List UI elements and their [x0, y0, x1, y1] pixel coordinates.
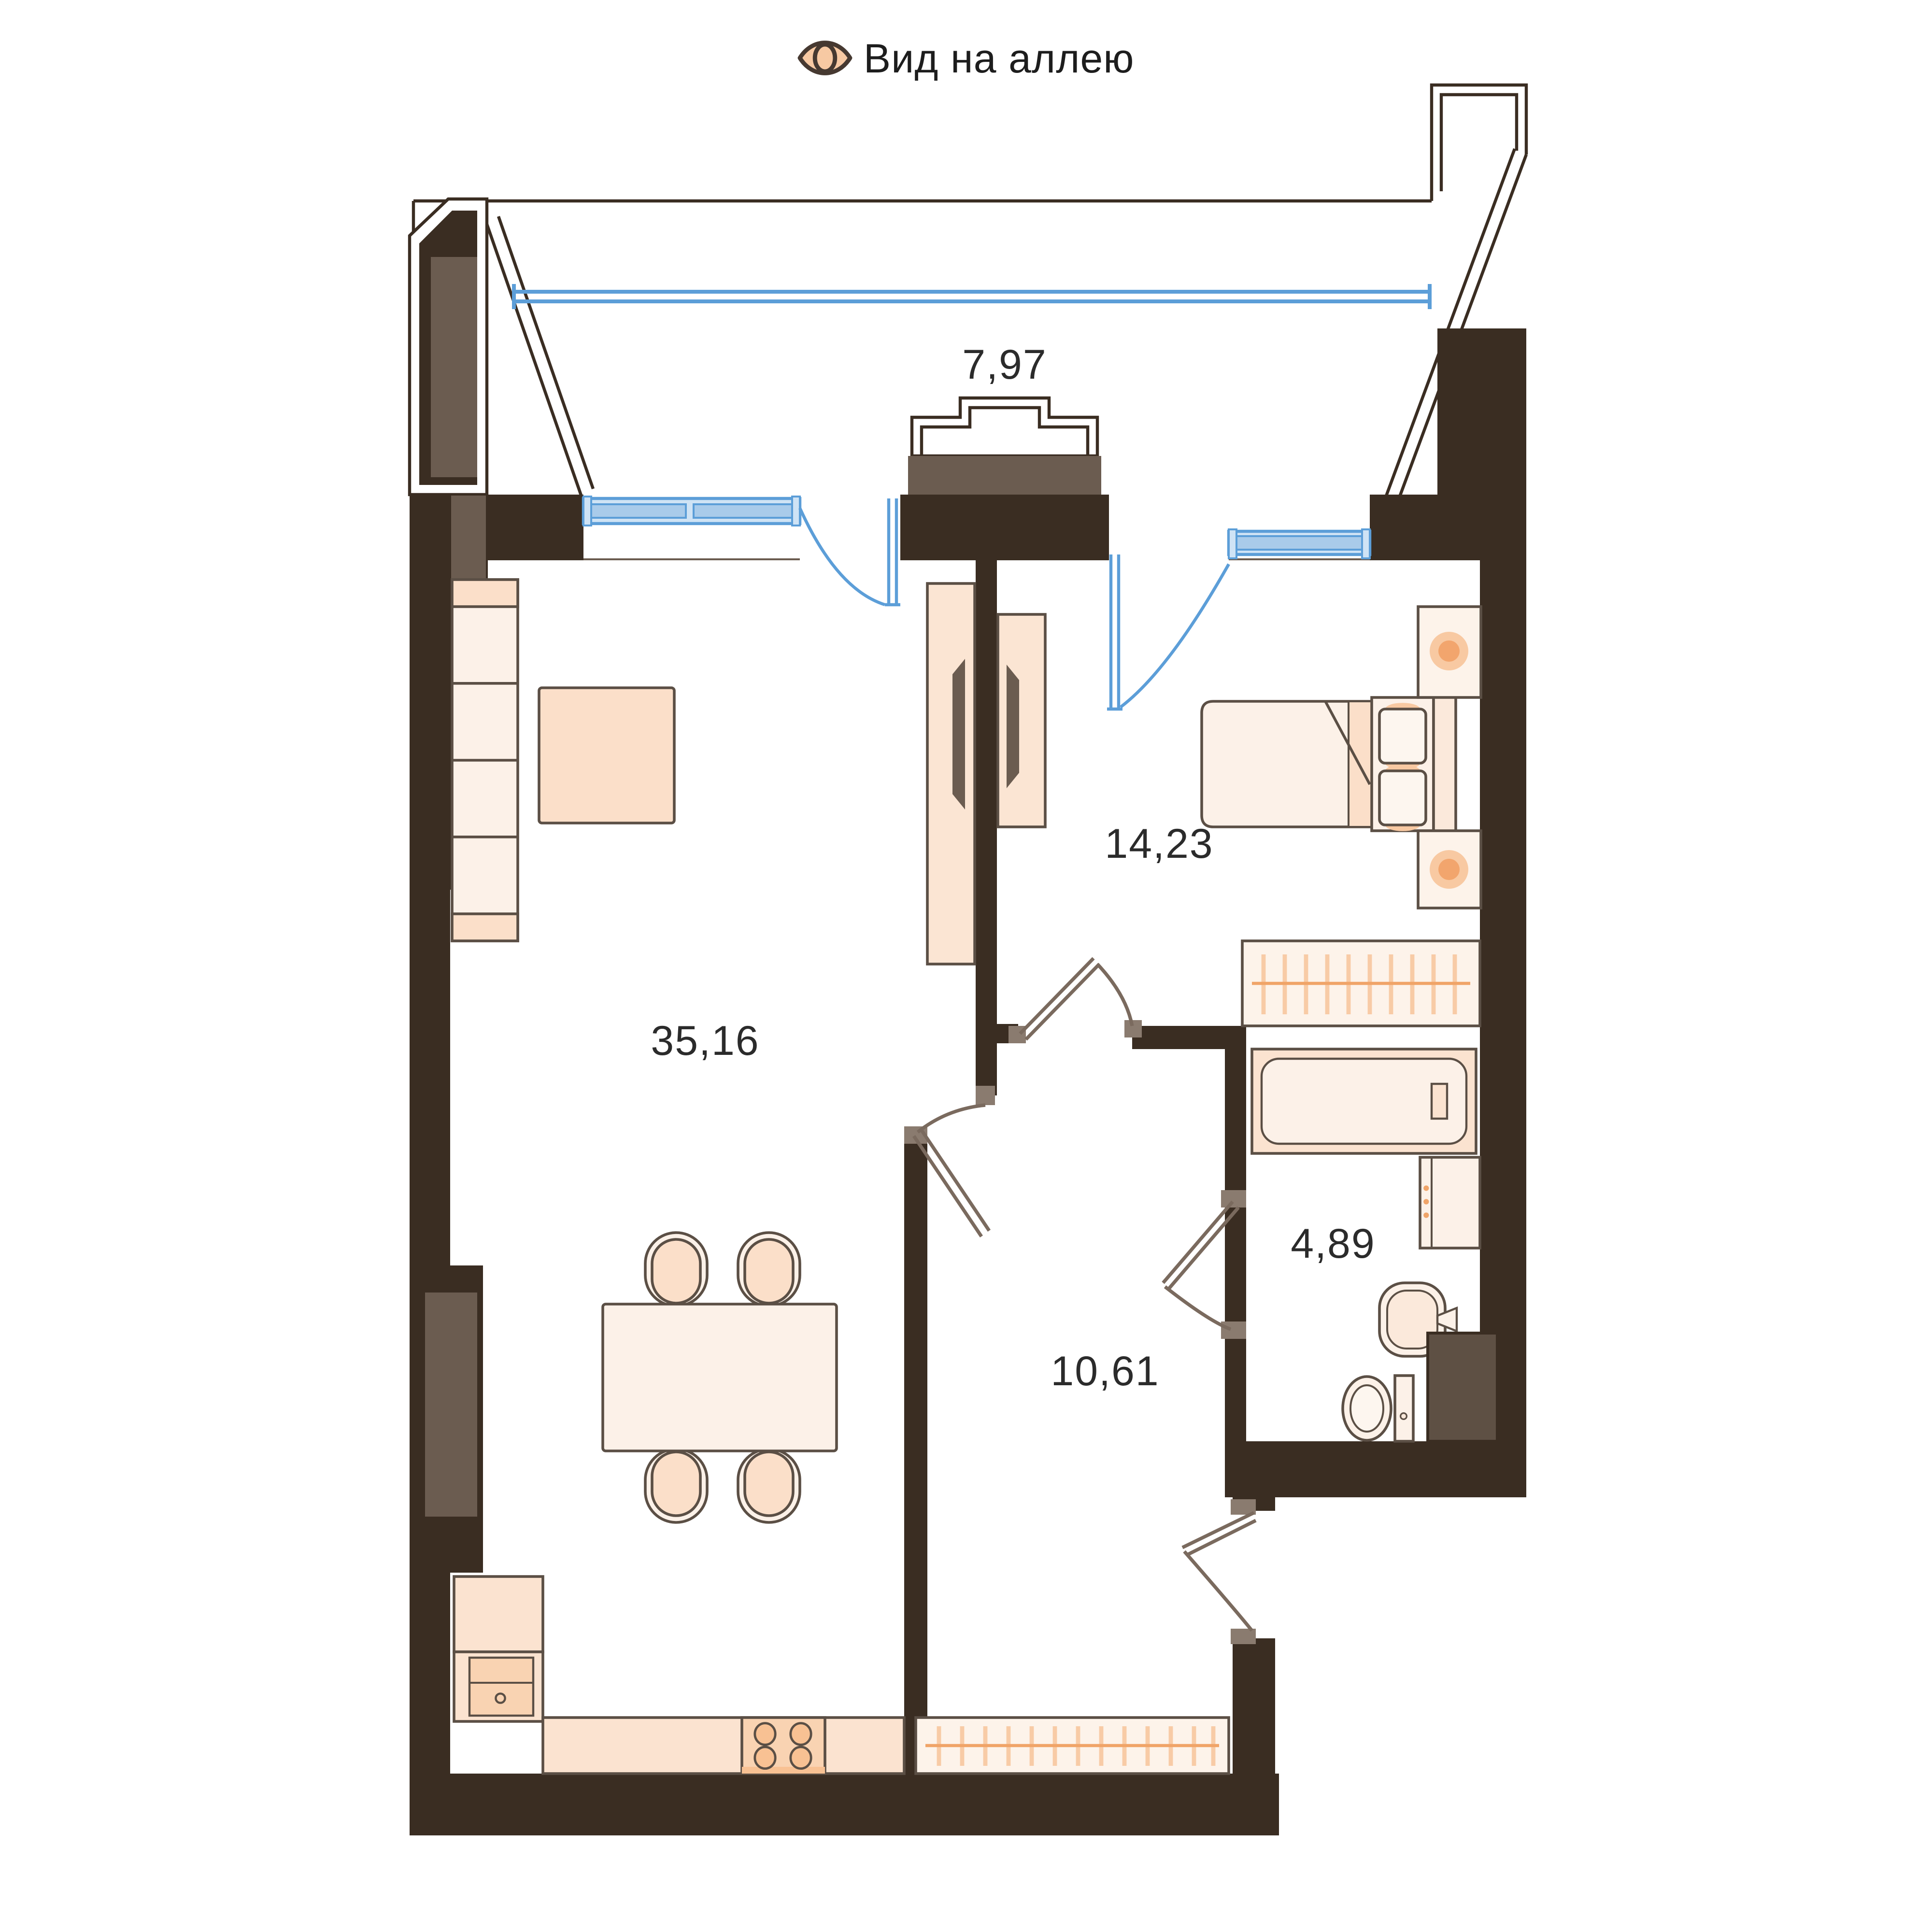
stove-4-burners: [742, 1718, 825, 1774]
dining-table: [603, 1304, 837, 1451]
furniture: [452, 580, 1497, 1774]
balcony-area-label: 7,97: [962, 341, 1047, 388]
balcony-door-living: [800, 498, 900, 605]
view-title: Вид на аллею: [800, 36, 1135, 81]
balcony-door-bedroom: [1107, 554, 1229, 709]
kitchen: [454, 1577, 904, 1774]
kitchen-counter: [543, 1718, 904, 1774]
wall-niche: [423, 1291, 479, 1519]
living-kitchen-area-label: 35,16: [651, 1018, 759, 1064]
interior-doors: [904, 958, 1256, 1644]
bedroom-corridor-door: [1009, 958, 1142, 1043]
washing-machine: [1420, 1157, 1480, 1248]
chair: [738, 1233, 800, 1306]
bottom-wall: [410, 1774, 1279, 1835]
vent-duct: [1428, 1333, 1497, 1441]
floor-plan: Вид на аллею: [0, 0, 1932, 1932]
balcony-door-porch: [908, 398, 1101, 495]
wardrobe-rail-hall: [916, 1718, 1229, 1774]
tv-screen-bedroom: [1007, 665, 1019, 788]
toilet: [1343, 1376, 1413, 1441]
chair: [645, 1233, 707, 1306]
pillow: [1379, 709, 1426, 763]
bedroom-area-label: 14,23: [1105, 821, 1213, 867]
double-bed: [1202, 694, 1456, 835]
view-title-label: Вид на аллею: [864, 36, 1135, 81]
balcony-pillar: [410, 199, 487, 495]
coffee-table: [539, 688, 674, 823]
balcony-glazing: [514, 284, 1430, 309]
balcony-threshold: [908, 456, 1101, 495]
bath-faucet: [1432, 1084, 1447, 1119]
divider-wall: [976, 495, 997, 1095]
dining-table-set: [603, 1233, 837, 1522]
headboard: [1434, 694, 1456, 835]
chair: [738, 1449, 800, 1522]
chair: [645, 1449, 707, 1522]
living-window: [583, 495, 800, 560]
sofa: [452, 580, 518, 941]
tv-unit-living: [927, 583, 975, 964]
pillow: [1379, 771, 1426, 825]
entrance-door: [1182, 1499, 1256, 1644]
tv-unit-bedroom: [998, 614, 1045, 827]
tv-screen-living: [952, 659, 965, 810]
bathroom-area-label: 4,89: [1291, 1221, 1375, 1267]
eye-icon: [800, 43, 850, 73]
hallway-area-label: 10,61: [1051, 1348, 1159, 1394]
wardrobe-rail-bedroom: [1242, 941, 1480, 1026]
fridge-column: [454, 1577, 543, 1652]
nightstand-lower: [1418, 831, 1481, 908]
nightstand-upper: [1418, 607, 1481, 697]
bathtub: [1252, 1049, 1476, 1153]
bedroom-window: [1229, 495, 1370, 560]
